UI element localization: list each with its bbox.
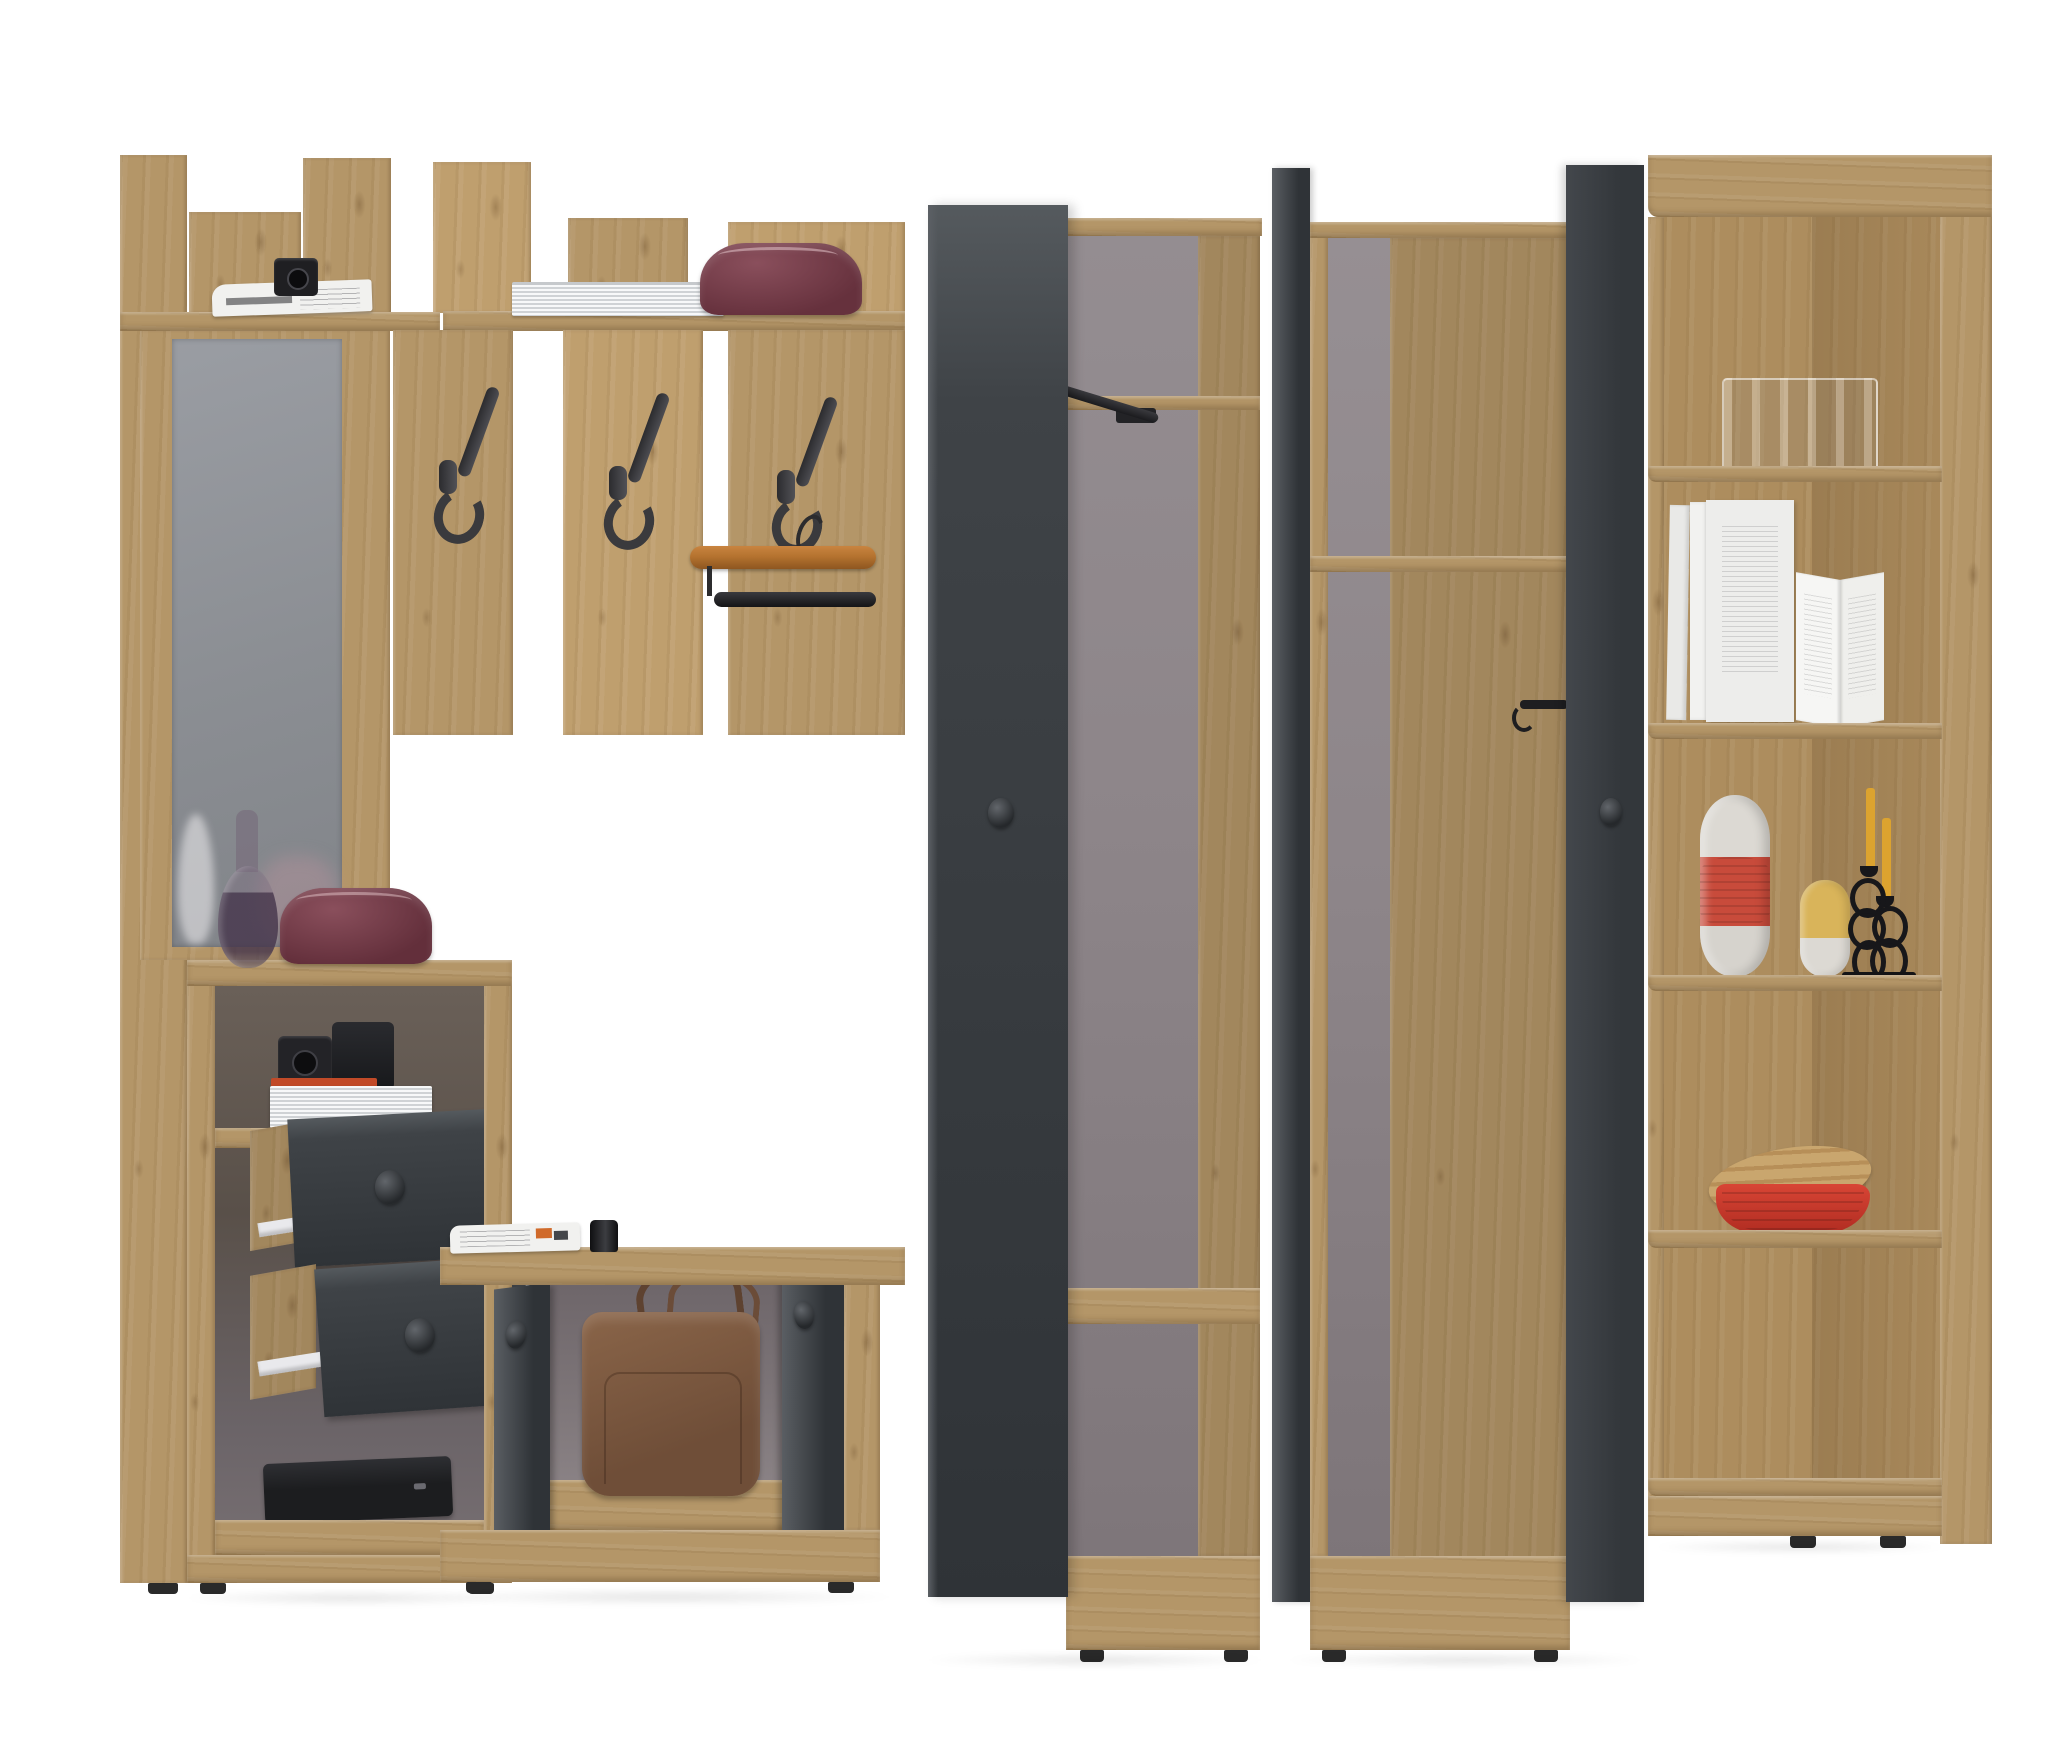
hook-rod (626, 391, 670, 484)
book-front-cover (1706, 500, 1794, 722)
drawer2-knob (404, 1317, 436, 1353)
black-flask (590, 1220, 618, 1252)
wardrobe2-back-oak-panel (1390, 238, 1570, 1560)
candle-1 (1866, 788, 1875, 870)
bench-right-side (844, 1262, 880, 1530)
corner-unit-top-board (1648, 155, 1992, 217)
vase-ridges (1700, 857, 1770, 927)
laptop-zipper-pull (414, 1483, 426, 1490)
coat-hook-2 (600, 388, 670, 538)
wall-shelf-left (120, 312, 440, 331)
floor-shadow-corner-unit (1650, 1540, 1950, 1554)
wardrobe2-top-board (1310, 222, 1570, 238)
wardrobe1-door-knob (988, 798, 1014, 828)
newspaper-headline (226, 296, 292, 305)
floor-shadow-wardrobe2 (1280, 1652, 1650, 1668)
burgundy-pouch-on-shelf (700, 243, 862, 315)
bench-door-right-knob (794, 1300, 814, 1330)
hook-rod (794, 395, 838, 488)
camera-on-shelf (274, 258, 318, 296)
wardrobe2-left-door-edge-on (1272, 168, 1310, 1602)
thick-white-book (512, 282, 724, 316)
bench-door-left-knob (506, 1320, 526, 1350)
wardrobe1-plinth (1066, 1556, 1260, 1650)
pouch-zipper (718, 247, 838, 264)
pouch-zipper (296, 892, 412, 909)
newspaper-text (460, 1230, 530, 1248)
wardrobe2-plinth (1310, 1556, 1570, 1650)
corner-unit-left-edge (1648, 217, 1664, 1501)
cabinet-left-side (187, 960, 215, 1583)
corner-shelf-2 (1648, 723, 1942, 739)
wardrobe1-door-edge (928, 205, 938, 1597)
wardrobe1-top-board (1066, 218, 1262, 236)
hanger-wire-left (707, 566, 712, 596)
bench-top (440, 1247, 905, 1285)
corner-shelf-1 (1648, 466, 1942, 482)
bench-door-right-open (782, 1259, 844, 1538)
corner-shelf-5 (1648, 1478, 1942, 1496)
coat-hook-1 (430, 382, 500, 532)
book-spine-1 (1666, 505, 1690, 720)
wardrobe1-bottom-shelf (1066, 1288, 1260, 1324)
drawer2-box-side (250, 1264, 316, 1400)
laptop-bag (263, 1456, 453, 1524)
wardrobe1-door-open (928, 205, 1068, 1597)
brown-handbag (582, 1312, 760, 1496)
hanger-black-bar (714, 592, 876, 607)
floor-shadow-bench (430, 1588, 900, 1606)
book-cover-text (1722, 526, 1778, 676)
handbag-pocket-seam (604, 1372, 742, 1484)
newspaper-photo-orange (536, 1228, 552, 1238)
camera-lens (287, 268, 309, 290)
red-bamboo-bowl (1716, 1184, 1870, 1234)
corner-shelf-4 (1648, 1230, 1942, 1248)
wardrobe2-interior-back-gray (1328, 238, 1390, 1560)
wardrobe2-wall-hook-curl (1512, 704, 1536, 732)
floor-shadow-wardrobe1 (920, 1652, 1270, 1668)
open-book-page-right (1840, 572, 1884, 728)
white-red-vase (1700, 795, 1770, 977)
newspaper-photo-dark (554, 1231, 568, 1240)
glass-vase (1722, 378, 1878, 472)
open-book-text (1804, 594, 1832, 699)
bench-door-left-open (494, 1283, 550, 1554)
left-panel-foot (148, 1583, 178, 1594)
wardrobe1-right-side (1198, 236, 1260, 1556)
corner-unit-bottom (1648, 1496, 1942, 1536)
wardrobe2-right-door-open (1566, 165, 1644, 1602)
newspaper-on-bench (450, 1222, 581, 1253)
camera-lens (292, 1050, 318, 1076)
bench-plinth (440, 1530, 880, 1582)
wardrobe1-interior-back (1066, 236, 1198, 1556)
wardrobe2-door-knob (1600, 798, 1622, 826)
corner-shelf-3 (1648, 975, 1942, 991)
drawer1-knob (374, 1170, 406, 1206)
hanger-wood-bar (690, 546, 876, 569)
smoky-glass-vase-neck (236, 810, 258, 872)
wardrobe2-shelf (1310, 556, 1570, 572)
corner-unit-right-panel (1940, 160, 1992, 1544)
bowl-ridges (1722, 1192, 1864, 1230)
yellow-white-vase (1800, 880, 1850, 977)
open-book-text (1848, 594, 1876, 699)
hallway-furniture-set-render (0, 0, 2048, 1757)
burgundy-pouch-on-cabinet (280, 888, 432, 964)
hook-rod (456, 385, 500, 478)
wardrobe2-left-side (1310, 222, 1328, 1556)
open-book-page-left (1796, 572, 1840, 728)
